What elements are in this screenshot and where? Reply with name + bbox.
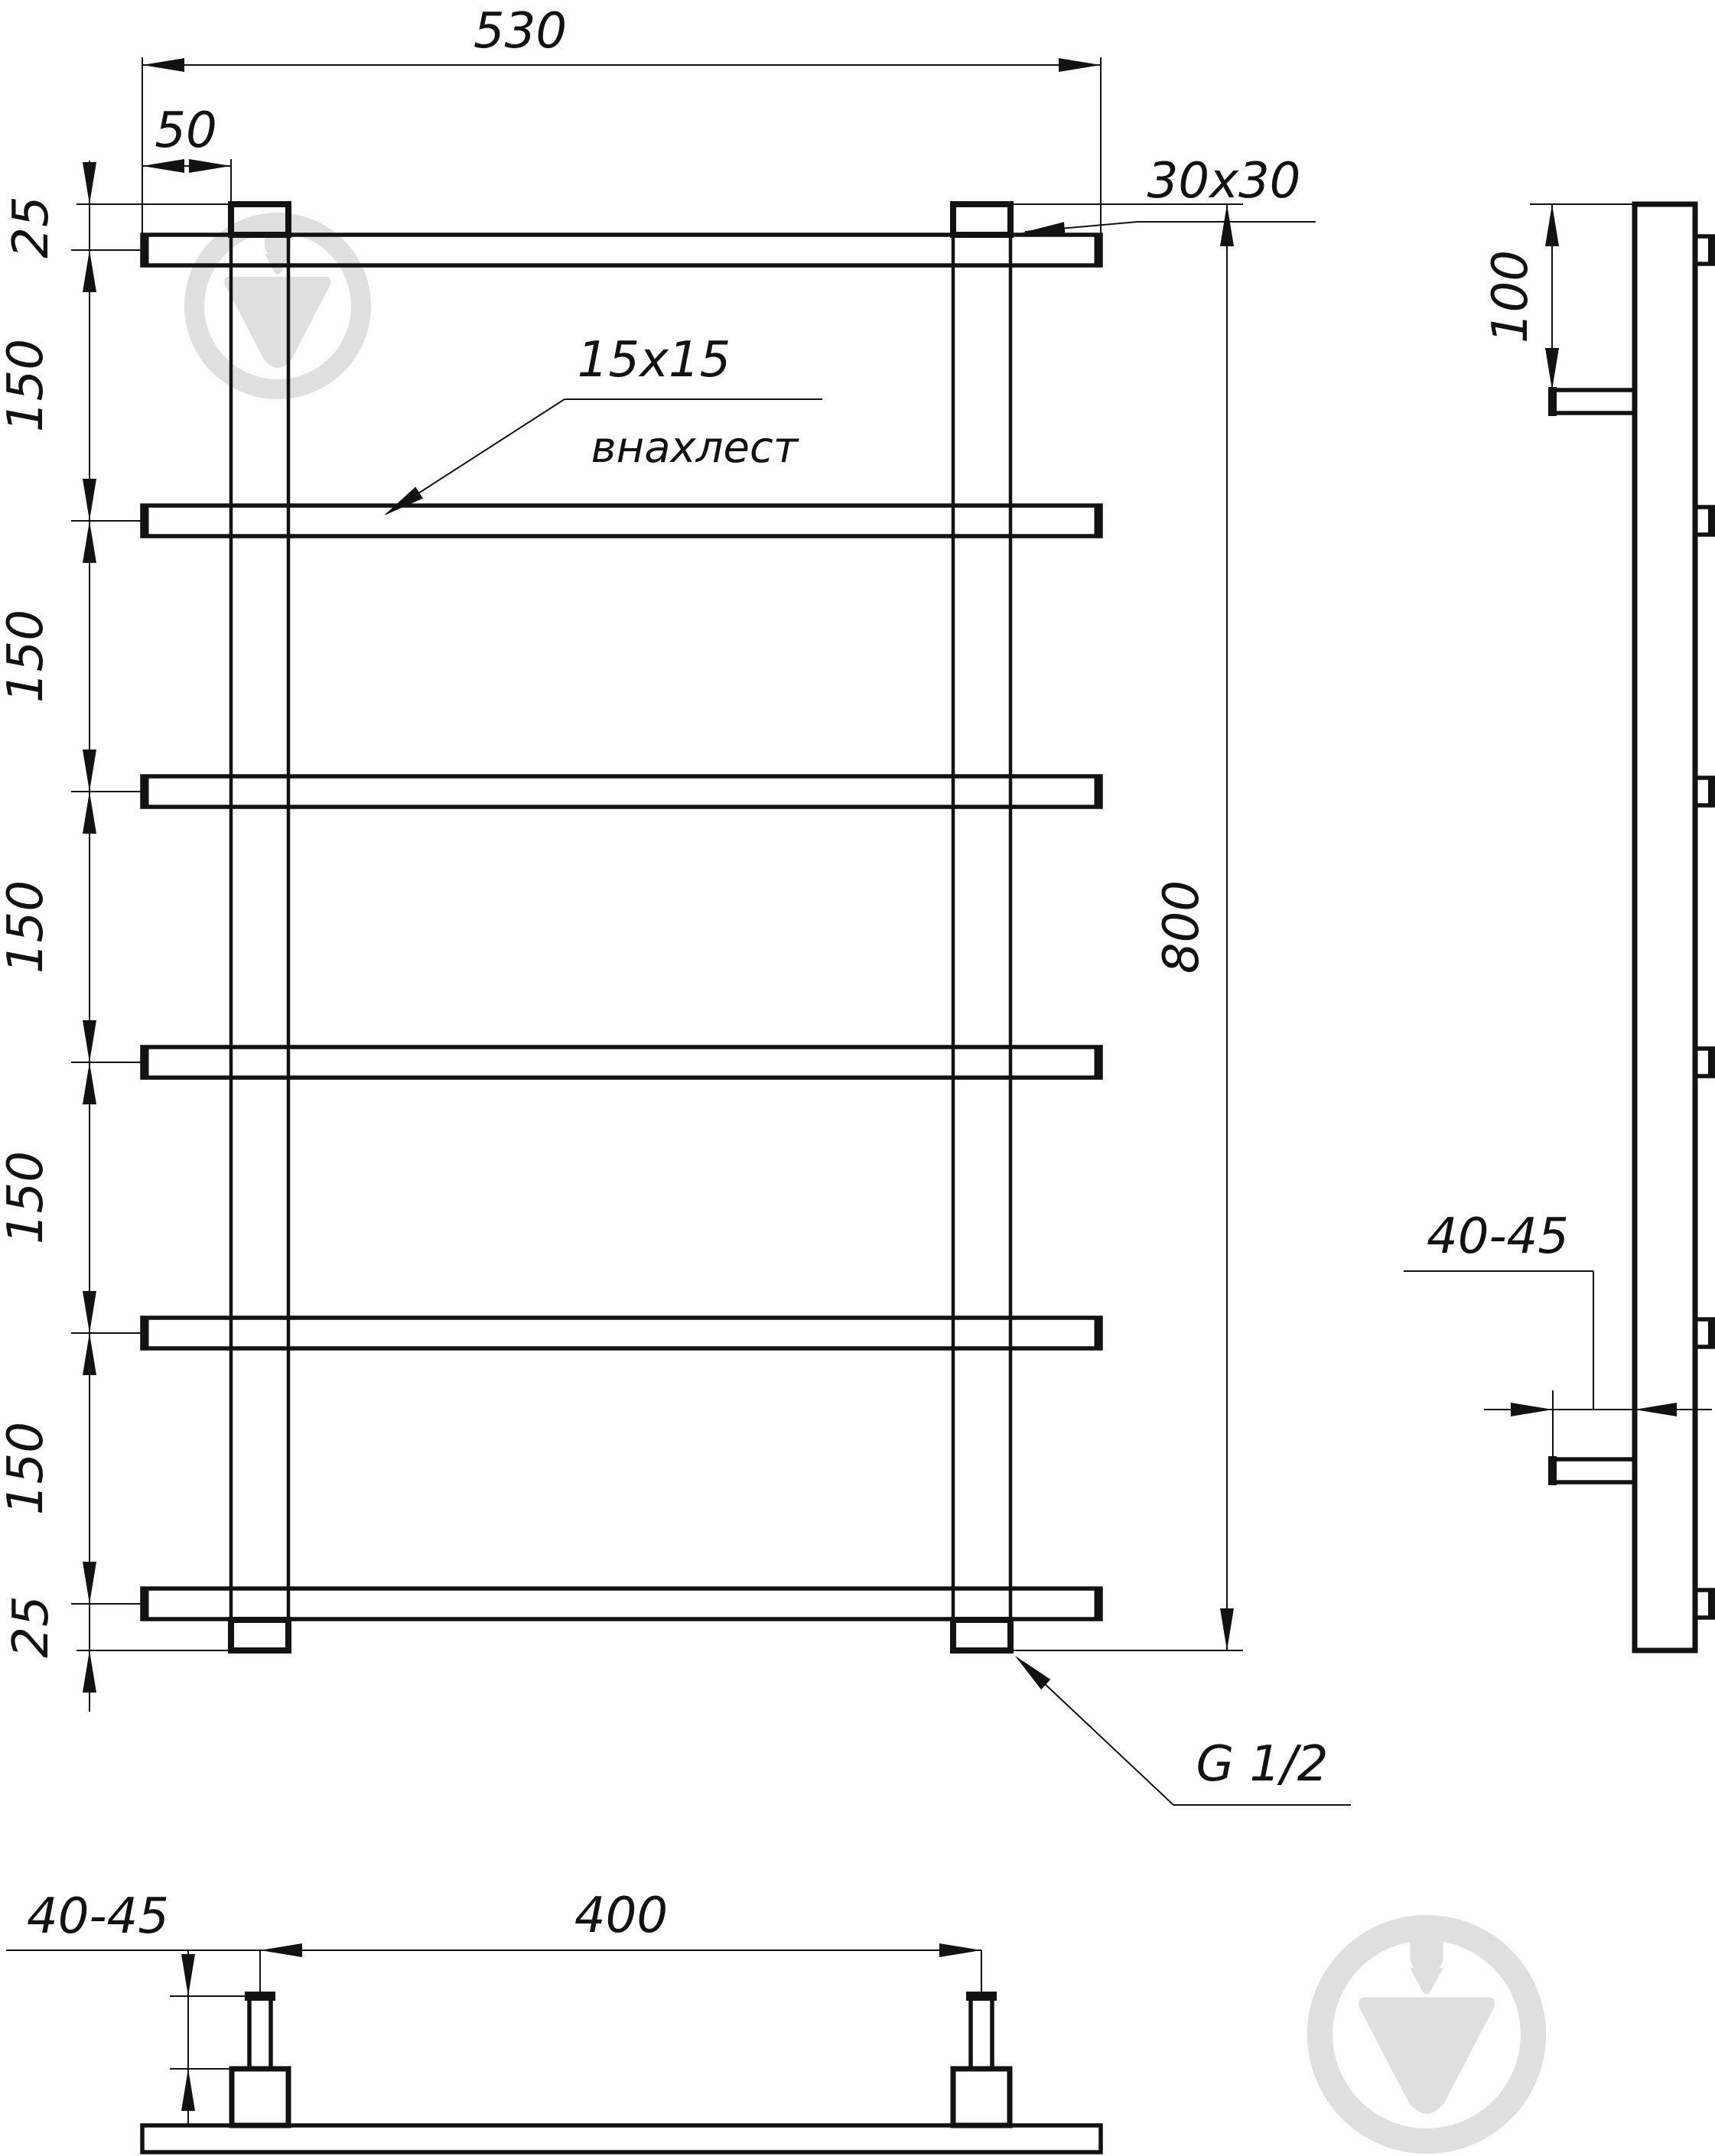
left-post xyxy=(231,204,288,1650)
dim-4045-side-label: 40-45 xyxy=(1427,1208,1569,1265)
dim-530: 530 xyxy=(142,3,1101,233)
rail-2 xyxy=(142,506,1101,536)
rail-3 xyxy=(142,776,1101,807)
rail-6 xyxy=(142,1589,1101,1619)
callout-g12-label: G 1/2 xyxy=(1196,1736,1329,1793)
dim-100-label: 100 xyxy=(1482,250,1539,343)
dim-4045-bottom: 40-45 xyxy=(27,1888,249,2125)
side-rail-stubs xyxy=(1695,235,1715,1619)
dim-50: 50 xyxy=(142,102,231,203)
left-post-bottom-cap xyxy=(231,1620,288,1650)
trowel-watermark-top xyxy=(194,219,361,389)
dim-150-label-5: 150 xyxy=(0,1422,54,1515)
right-post-bottom-cap xyxy=(953,1620,1010,1650)
bottom-posts xyxy=(232,1992,1010,2125)
bottom-right-post xyxy=(953,2069,1010,2125)
dim-25-bottom-label: 25 xyxy=(3,1595,60,1657)
dim-4045-side: 40-45 xyxy=(1404,1208,1712,1459)
bottom-left-post xyxy=(232,2069,288,2125)
top-bracket xyxy=(1552,390,1635,413)
dim-800-label: 800 xyxy=(1154,880,1210,974)
dim-100: 100 xyxy=(1482,204,1635,390)
callout-30x30: 30x30 xyxy=(1022,153,1316,239)
bottom-left-bracket xyxy=(249,1996,271,2069)
dim-25-top-label: 25 xyxy=(3,196,60,258)
dim-4045-bottom-label: 40-45 xyxy=(27,1888,169,1945)
trowel-watermark-bottom xyxy=(1320,1923,1533,2141)
dim-400: 400 xyxy=(260,1888,981,1992)
right-post xyxy=(953,204,1010,1650)
dim-150-label-2: 150 xyxy=(0,610,54,703)
bottom-rail-plate xyxy=(142,2125,1101,2152)
bottom-bracket xyxy=(1552,1459,1635,1482)
dim-150-label-4: 150 xyxy=(0,1151,54,1244)
dim-chain-left: 25 150 150 150 150 150 25 xyxy=(0,161,231,1712)
rail-5 xyxy=(142,1318,1101,1348)
right-post-top-cap xyxy=(953,204,1010,235)
callout-15x15: 15x15 внахлест xyxy=(380,332,822,522)
towel-rail-technical-drawing: 530 50 xyxy=(0,0,1715,2156)
callout-overlap-label: внахлест xyxy=(591,423,799,473)
dim-400-label: 400 xyxy=(574,1888,668,1944)
bottom-right-bracket xyxy=(971,1996,992,2069)
bottom-view: 400 40-45 xyxy=(6,1888,1101,2152)
callout-15x15-label: 15x15 xyxy=(578,332,731,389)
dim-50-label: 50 xyxy=(155,102,216,159)
dim-800: 800 xyxy=(1014,204,1243,1650)
callout-g12: G 1/2 xyxy=(1010,1650,1351,1805)
drawing-canvas: 530 50 xyxy=(0,0,1715,2156)
dim-150-label-1: 150 xyxy=(0,339,54,432)
callout-30x30-label: 30x30 xyxy=(1147,153,1301,210)
dim-150-label-3: 150 xyxy=(0,880,54,974)
side-wall-brackets xyxy=(1548,387,1635,1485)
rail-4 xyxy=(142,1047,1101,1078)
dim-530-label: 530 xyxy=(473,3,567,60)
side-post xyxy=(1635,204,1695,1650)
side-view: 100 40-45 xyxy=(1404,204,1715,1650)
